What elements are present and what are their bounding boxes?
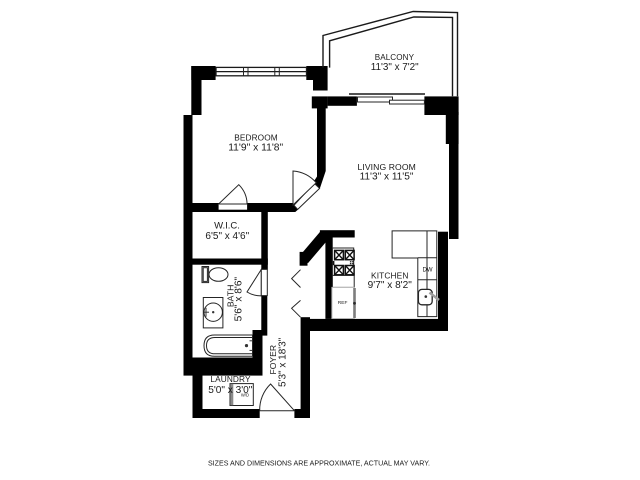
svg-text:5'3" x 18'3": 5'3" x 18'3" — [277, 337, 288, 387]
svg-text:REF: REF — [338, 300, 348, 306]
svg-text:LAUNDRY: LAUNDRY — [210, 374, 251, 384]
svg-text:11'3" x 7'2": 11'3" x 7'2" — [371, 62, 419, 73]
svg-text:BEDROOM: BEDROOM — [234, 132, 278, 142]
svg-text:5'6" x 8'6": 5'6" x 8'6" — [234, 276, 245, 321]
svg-text:11'3" x 11'5": 11'3" x 11'5" — [360, 171, 414, 182]
svg-text:6'5" x 4'6": 6'5" x 4'6" — [205, 231, 249, 242]
svg-text:11'9" x 11'8": 11'9" x 11'8" — [228, 142, 283, 153]
svg-text:9'7" x 8'2": 9'7" x 8'2" — [368, 280, 413, 291]
svg-text:BALCONY: BALCONY — [375, 53, 415, 62]
svg-text:DW: DW — [423, 268, 433, 274]
svg-text:KITCHEN: KITCHEN — [371, 270, 408, 280]
svg-text:SIZES AND DIMENSIONS ARE APPRO: SIZES AND DIMENSIONS ARE APPROXIMATE, AC… — [208, 460, 430, 468]
svg-text:W/D: W/D — [241, 392, 249, 397]
